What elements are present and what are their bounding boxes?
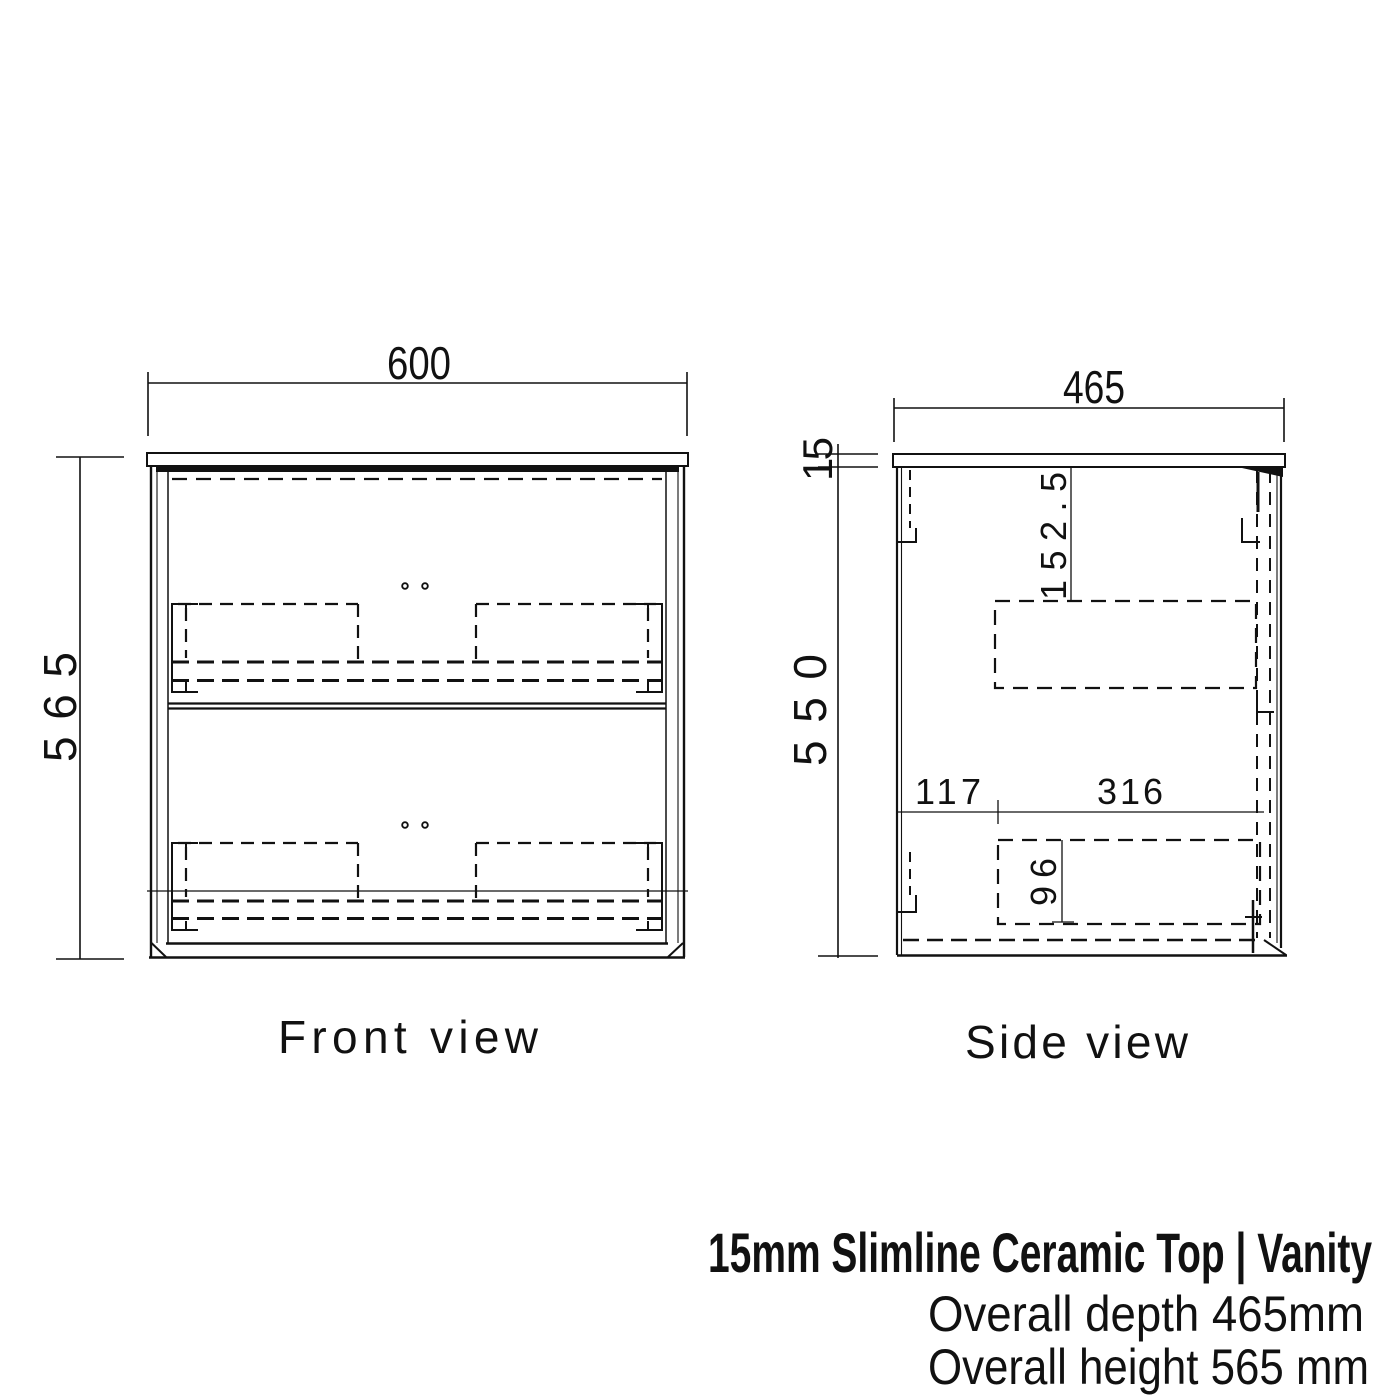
title-block: 15mm Slimline Ceramic Top | Vanity Overa…: [708, 1221, 1372, 1395]
side-top-thickness-dim-label: 15: [794, 437, 841, 481]
front-countertop: [147, 453, 688, 466]
front-carcass-walls: [151, 466, 684, 957]
overall-depth-spec: Overall depth 465mm: [928, 1286, 1364, 1342]
front-runner-brackets: [172, 604, 662, 930]
front-width-dim-label: 600: [387, 337, 451, 389]
front-hidden-lines: [172, 479, 662, 919]
side-runner-height-dim-label: 96: [1023, 858, 1064, 906]
front-view-label: Front view: [278, 1011, 540, 1063]
side-carcass: [897, 467, 1287, 956]
side-runner-brackets: [898, 472, 1274, 953]
overall-height-spec: Overall height 565 mm: [928, 1339, 1369, 1395]
side-runner-offset-dim-label: 152.5: [1033, 472, 1074, 600]
side-depth-dim-label: 465: [1063, 361, 1125, 413]
side-front-offset-dim-label: 117: [915, 771, 981, 812]
side-hidden-lines: [903, 470, 1270, 940]
front-handle-holes: [402, 583, 428, 828]
side-runner-length-dim-label: 316: [1097, 771, 1163, 812]
technical-drawing-page: 600 565 Front view: [0, 0, 1400, 1400]
side-interior-dimensions: [898, 467, 1264, 922]
front-view-drawing: [56, 372, 688, 959]
front-divider: [168, 704, 666, 709]
vanity-drawing-svg: 600 565 Front view: [0, 0, 1400, 1400]
side-countertop: [893, 454, 1285, 467]
side-carcass-height-dim-label: 550: [784, 654, 836, 766]
side-view-label: Side view: [965, 1016, 1190, 1068]
front-height-dim-label: 565: [34, 652, 86, 762]
product-title: 15mm Slimline Ceramic Top | Vanity: [708, 1221, 1372, 1285]
